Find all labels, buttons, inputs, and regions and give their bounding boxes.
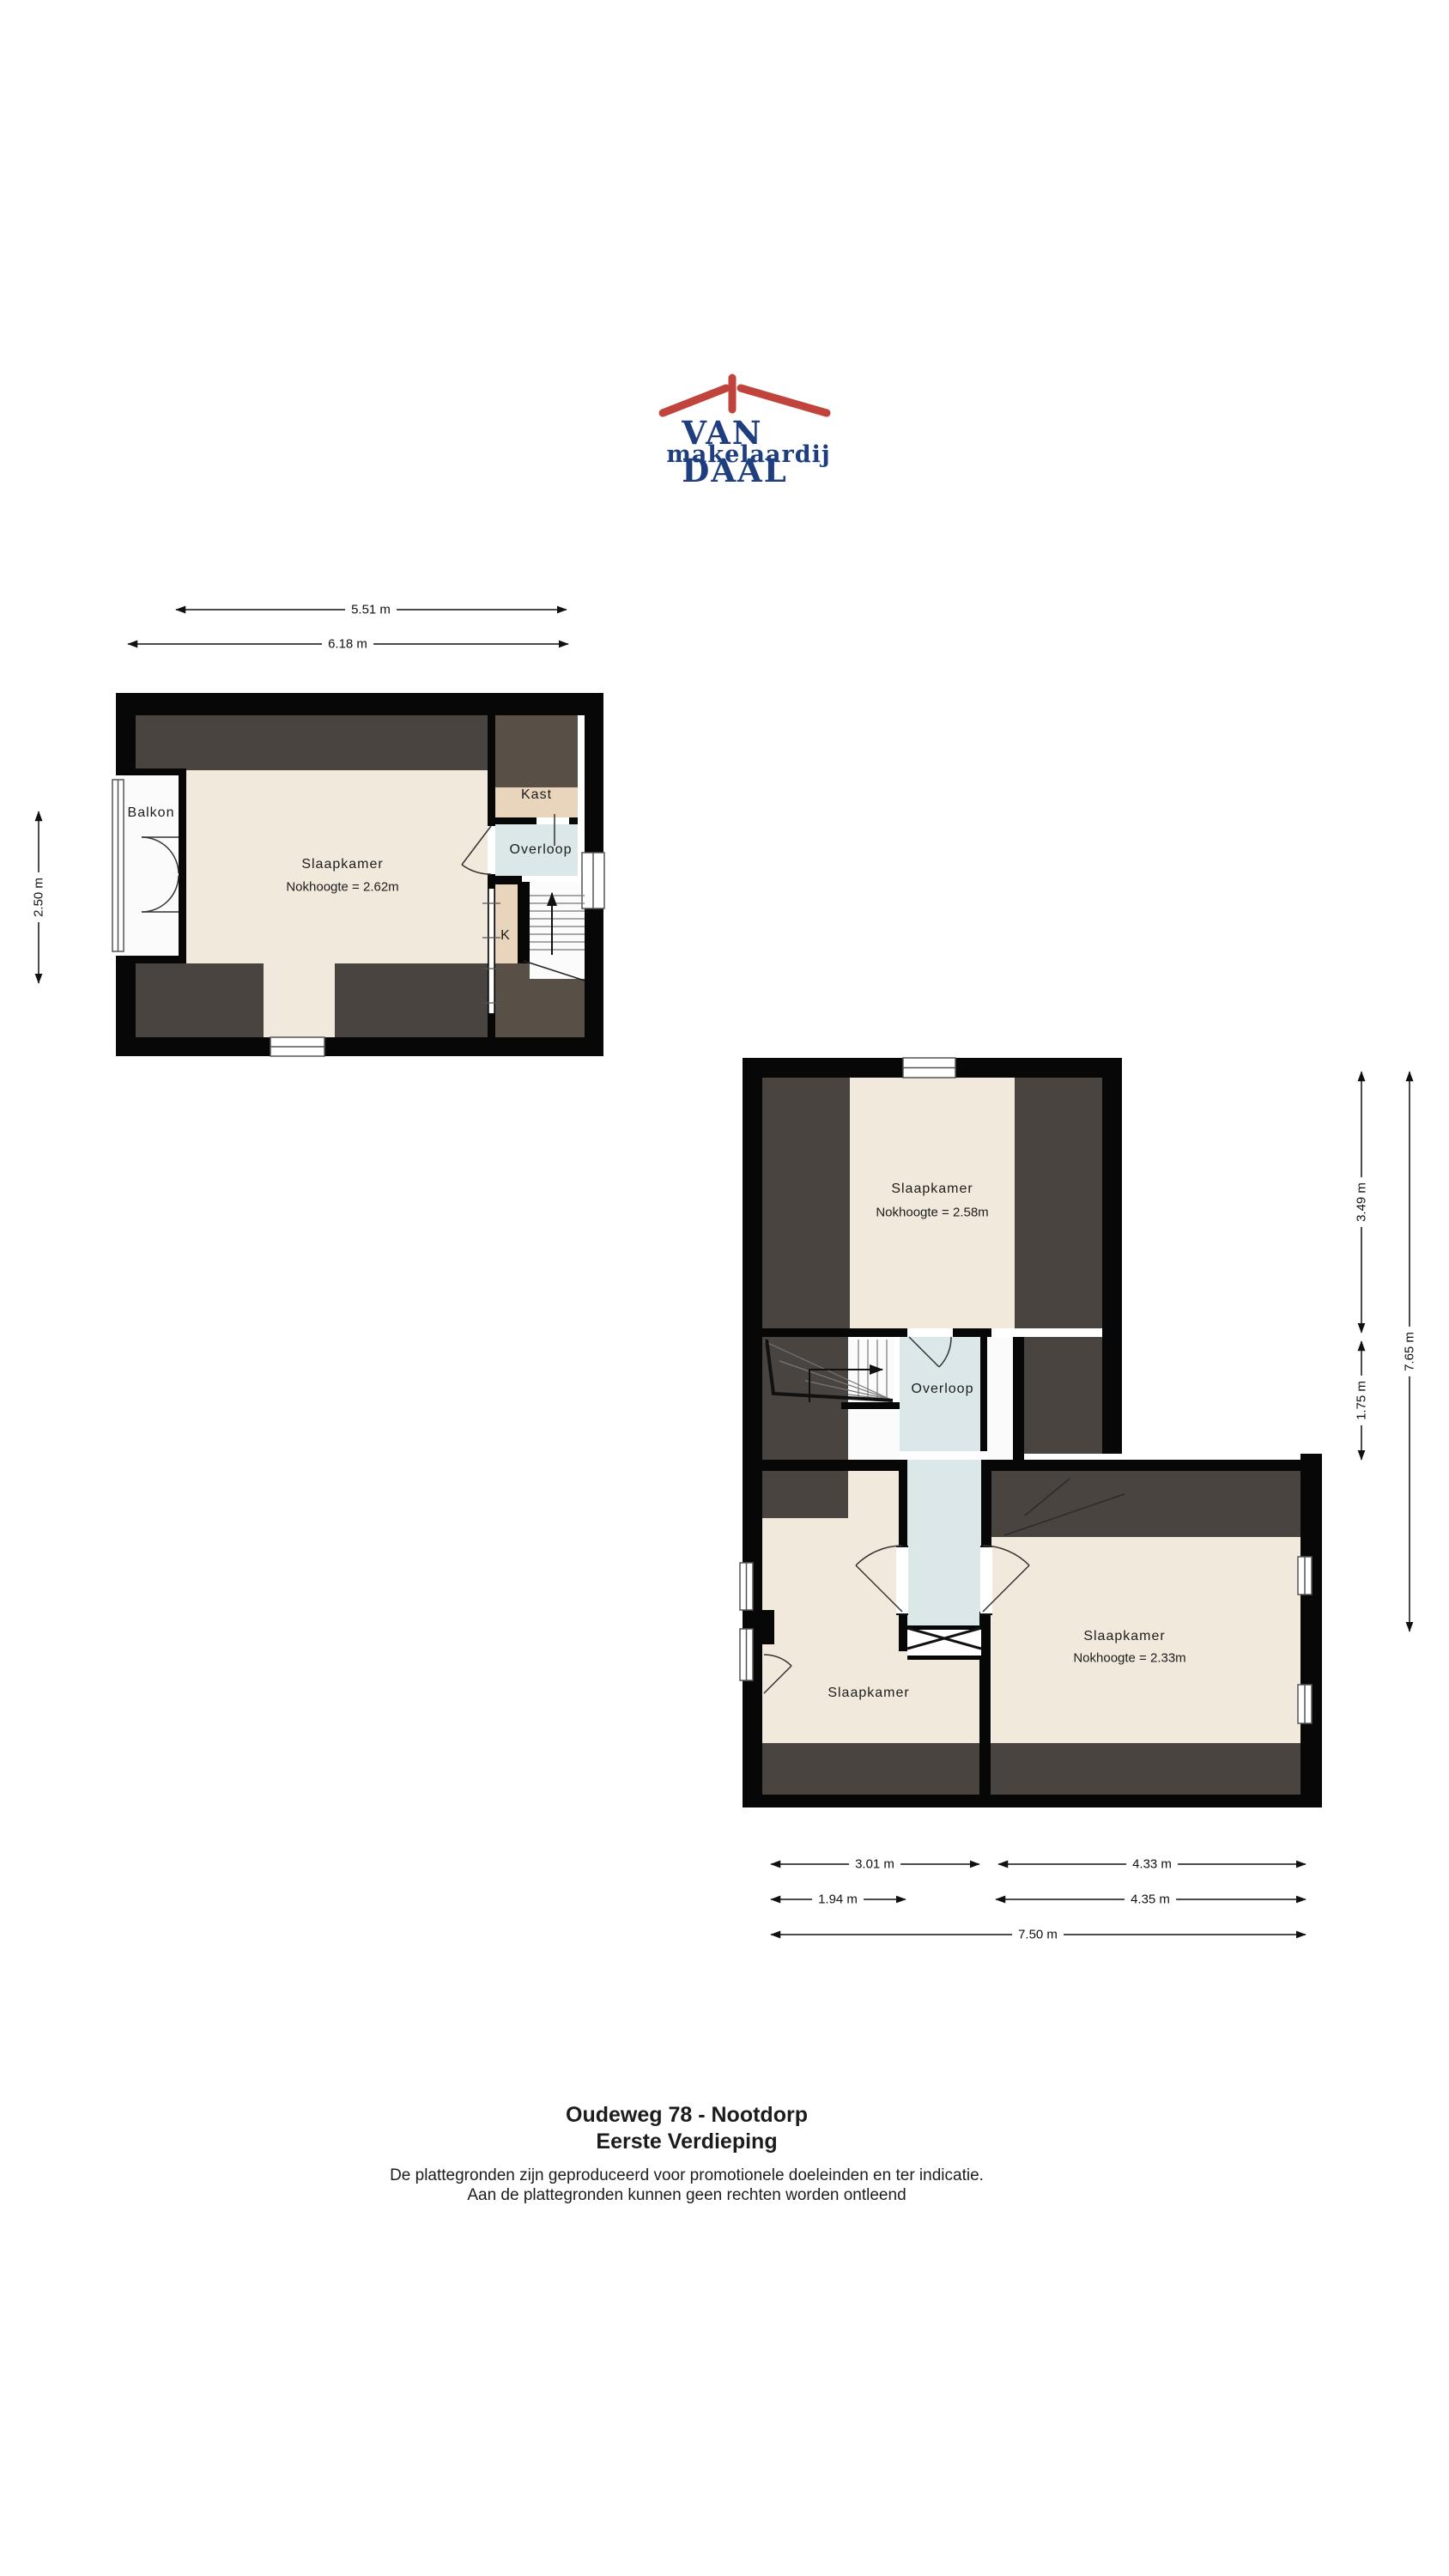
plan2-corridor-wall-right-a [981,1460,991,1546]
plan1-wall-right [585,714,603,1037]
plan2-dim-bottom-row2-left: 1.94 m [812,1893,864,1907]
plan2-slaapkamer-top-sublabel: Nokhoogte = 2.58m [876,1206,988,1220]
plan1-overloop-label: Overloop [510,842,573,858]
plan2-recess-strip [987,1337,1013,1460]
plan2-overloop-threshold [900,1451,980,1460]
plan2-right-door-jamb [980,1546,992,1615]
plan2-dim-right-top: 3.49 m [1355,1177,1369,1227]
plan2-sloped-ceiling-bottomstrip [762,1743,1300,1795]
plan2-slaapkamer-top-label: Slaapkamer [891,1182,973,1197]
plan1-sloped-ceiling-topright [495,714,578,787]
plan2-toproom-door-opening [907,1328,953,1337]
plan1-balkon-wall-top [116,769,186,775]
plan2-slaapkamer-left-floor-a [848,1471,899,1518]
plan2-dim-bottom-row1-left: 3.01 m [849,1857,900,1872]
plan2-slaapkamer-right-sublabel: Nokhoogte = 2.33m [1073,1651,1185,1666]
plan1-dormer-nook-floor [264,963,335,1037]
plan1-k-label: K [500,928,511,944]
plan1-slaapkamer-label: Slaapkamer [301,857,383,872]
footer: Oudeweg 78 - Nootdorp Eerste Verdieping … [258,2102,1116,2205]
plan2-corridor-wall-left-a [899,1460,907,1546]
plan1-wall-left-upper [116,715,136,769]
footer-disclaimer-line2: Aan de plattegronden kunnen geen rechten… [258,2185,1116,2205]
plan2-overloop-wall-right [980,1337,987,1451]
plan1-stairs-floor [530,882,585,979]
plan1-slaapkamer-sublabel: Nokhoogte = 2.62m [286,880,398,895]
plan1-balkon-label: Balkon [128,805,175,821]
footer-subtitle: Eerste Verdieping [258,2129,1116,2155]
plan2-stairs-floor [848,1337,894,1402]
plan2-sloped-ceiling-rightband [991,1471,1300,1537]
plan1-dim-width-inner: 5.51 m [345,603,397,617]
plan2-wall-top [743,1058,1122,1078]
plan2-left-door-jamb [896,1546,908,1615]
plan1-wall-top [116,693,603,715]
plan1-balkon-floor [122,775,179,956]
plan2-sloped-ceiling-topright [1015,1078,1102,1328]
plan1-kast-label: Kast [521,787,552,803]
plan2-wall-left [743,1058,762,1807]
plan1-kast-wall-bottom-right [569,817,578,824]
plan1-wall-bottom [116,1037,603,1056]
plan1-dim-width-outer: 6.18 m [322,637,373,652]
plan2-wall-mid-right [981,1460,1322,1471]
plan2-wall-mid-left [762,1460,899,1471]
plan2-corridor-floor [907,1460,981,1625]
plan2-dim-bottom-row2-right: 4.35 m [1125,1893,1176,1907]
footer-title: Oudeweg 78 - Nootdorp [258,2102,1116,2129]
plan2-recess-wall [1013,1337,1024,1460]
plan2-corridor-wall-left-b [899,1612,907,1651]
plan2-overloop-label: Overloop [912,1382,974,1397]
footer-disclaimer-line1: De plattegronden zijn geproduceerd voor … [258,2166,1116,2185]
plan1-dim-height-left: 2.50 m [32,872,46,922]
plan2-wall-bottom [743,1795,1322,1807]
plan2-slaapkamer-top-wall-bottom [762,1328,991,1337]
plan2-stair-step-wall [841,1402,900,1409]
plan2-slaapkamer-right-label: Slaapkamer [1083,1629,1165,1644]
plan2-slaapkamer-top-floor [850,1078,1015,1328]
plan2-sloped-ceiling-midright [1024,1337,1102,1454]
plan2-wall-right-top [1102,1078,1122,1454]
plan1-sliding-door-symbol [488,889,494,1013]
plan2-wall-right-ext [1300,1454,1322,1807]
plan2-slaapkamer-left-label: Slaapkamer [828,1686,909,1701]
plan1-sloped-ceiling-bottomleft [136,963,264,1037]
plan1-balkon-wall-right [179,775,186,956]
plan1-k-closet-floor [495,884,518,963]
plan1-overloop-door-opening [488,826,495,874]
floorplan-page: VAN DAAL makelaardij [0,0,1449,2576]
plan2-sloped-ceiling-leftblock [762,1471,848,1518]
plan1-kast-wall-bottom-left [495,817,537,824]
plan2-dim-right-mid: 1.75 m [1355,1376,1369,1425]
plan2-stairs-under-slope [762,1337,848,1460]
plan2-dim-right-total: 7.65 m [1403,1327,1417,1376]
plan1-stairs-wall-left [522,882,530,963]
plan2-void-symbol [907,1625,981,1660]
plan2-left-wall-pillar [743,1610,774,1644]
plan2-stair-landing [848,1408,900,1460]
logo-tagline: makelaardij [666,441,830,468]
plan2-sloped-ceiling-topleft [762,1078,850,1328]
plan2-dim-bottom-total: 7.50 m [1012,1928,1064,1942]
plan2-dim-bottom-row1-right: 4.33 m [1126,1857,1178,1872]
plan1-sloped-ceiling-bottommid [335,963,488,1037]
plan1-sloped-ceiling-top [136,715,488,770]
